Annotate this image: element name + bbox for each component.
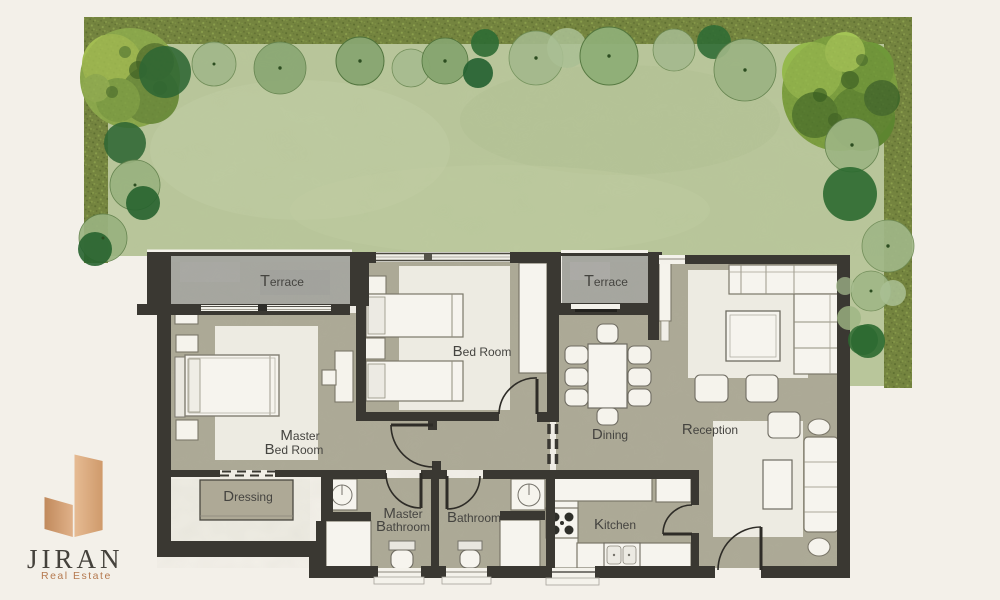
svg-text:Dressing: Dressing [223,488,273,505]
svg-text:Bed Room: Bed Room [453,343,512,360]
svg-text:Real Estate: Real Estate [41,570,112,582]
svg-text:Reception: Reception [682,421,738,438]
svg-text:Terrace: Terrace [260,273,304,290]
svg-text:Dining: Dining [592,426,628,443]
svg-text:Bathroom: Bathroom [447,509,501,526]
svg-text:Bed Room: Bed Room [265,441,324,458]
svg-text:Master: Master [280,427,319,444]
svg-text:Kitchen: Kitchen [594,516,636,533]
svg-text:Terrace: Terrace [584,273,628,290]
svg-text:Bathroom: Bathroom [376,518,430,535]
